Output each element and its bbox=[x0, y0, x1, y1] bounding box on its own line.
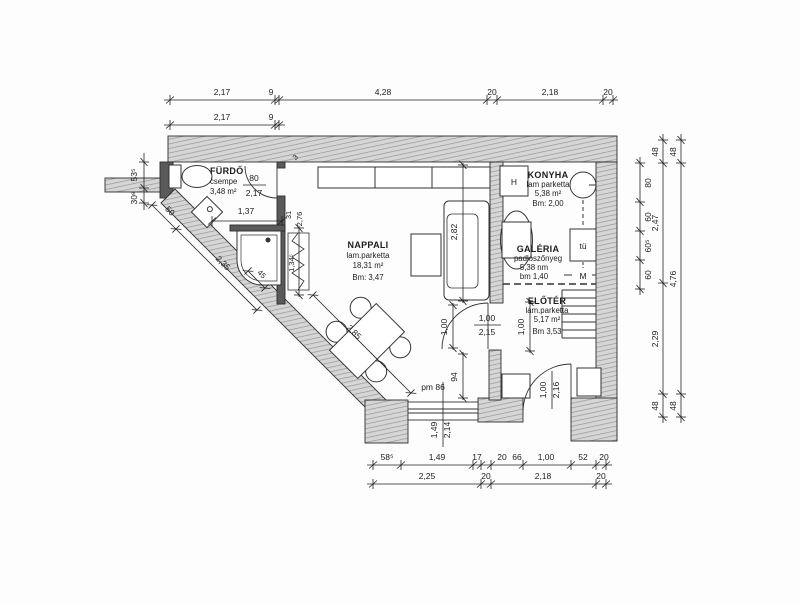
entrance-door-size: 2,16 bbox=[551, 381, 561, 398]
room-furdo: FÜRDŐ csempe 3,48 m² bbox=[210, 165, 244, 196]
dim-label: 1,00 bbox=[439, 318, 449, 335]
dim-right-mid bbox=[658, 134, 668, 423]
room-finish: csempe bbox=[210, 177, 237, 186]
room-name: NAPPALI bbox=[348, 240, 389, 250]
room-name: KONYHA bbox=[528, 170, 569, 180]
room-name: FÜRDŐ bbox=[210, 165, 244, 176]
dim-label: 80 bbox=[643, 178, 653, 188]
interior-door-size: 2,15 bbox=[479, 327, 496, 337]
wall-bottom-center bbox=[478, 398, 523, 422]
dim-label: 52 bbox=[578, 452, 588, 462]
room-finish: lam.parketta bbox=[526, 306, 570, 315]
dim-label: 53⁵ bbox=[129, 169, 139, 182]
wall-pier-below-door bbox=[489, 350, 501, 400]
dim-label: 2,82 bbox=[449, 223, 459, 240]
dim-label: 20 bbox=[599, 452, 609, 462]
dim-label: 2,18 bbox=[542, 87, 559, 97]
dim-label: 1,49 bbox=[429, 452, 446, 462]
window-size: 2,14 bbox=[442, 421, 452, 438]
dim-label: 2,25 bbox=[419, 471, 436, 481]
room-height: bm 1,40 bbox=[520, 272, 549, 281]
room-area: 5,38 m² bbox=[535, 189, 562, 198]
dim-label: 94 bbox=[449, 372, 459, 382]
dim-bath-width bbox=[208, 216, 286, 226]
coffee-table bbox=[411, 234, 441, 276]
wardrobe-row bbox=[318, 167, 490, 188]
washer-label: M bbox=[579, 271, 586, 281]
dim-label: 66 bbox=[512, 452, 522, 462]
dim-label: 31 bbox=[284, 211, 293, 219]
wall-niche-box bbox=[577, 368, 601, 396]
dim-label: 2,47 bbox=[650, 214, 660, 231]
dim-label: 9 bbox=[269, 87, 274, 97]
floor-plan-page: 2,17 9 4,28 20 2,18 20 2,17 9 58⁵ 1,49 1… bbox=[0, 0, 800, 603]
interior-door-size: 1,00 bbox=[479, 313, 496, 323]
dim-label: 4,76 bbox=[668, 270, 678, 287]
wall-bath-stub bbox=[277, 162, 285, 168]
dim-label: 58⁵ bbox=[381, 452, 394, 462]
entrance-door-size: 1,00 bbox=[538, 381, 548, 398]
dim-label: 20 bbox=[497, 452, 507, 462]
dining-set bbox=[316, 290, 417, 391]
wall-shower-top bbox=[230, 225, 285, 231]
room-name: GALÉRIA bbox=[517, 244, 560, 254]
room-konyha: KONYHA lam parketta 5,38 m² Bm: 2,00 bbox=[527, 170, 571, 208]
room-galeria: GALÉRIA padlószőnyeg 5,38 nm bm 1,40 bbox=[514, 244, 562, 281]
dim-label: 2,17 bbox=[214, 87, 231, 97]
bathroom-door-size: 80 bbox=[249, 173, 259, 183]
room-height: Bm 3,53 bbox=[532, 327, 561, 336]
wall-block-bottom-right bbox=[571, 398, 617, 441]
room-height: Bm: 3,47 bbox=[352, 273, 383, 282]
wall-top bbox=[168, 136, 617, 162]
toilet bbox=[169, 165, 212, 188]
room-area: 5,38 nm bbox=[520, 263, 548, 272]
dim-label: 48 bbox=[650, 147, 660, 157]
dim-label: 30⁸ bbox=[129, 191, 139, 204]
dim-label: 48 bbox=[650, 401, 660, 411]
dim-label: 1,37 bbox=[238, 206, 255, 216]
dim-label: 2,18 bbox=[535, 471, 552, 481]
kitchen-sink bbox=[570, 172, 596, 198]
parapet-label: pm 86 bbox=[421, 382, 445, 392]
room-finish: padlószőnyeg bbox=[514, 254, 562, 263]
room-area: 5,17 m² bbox=[534, 315, 561, 324]
dim-label: 60⁵ bbox=[643, 240, 653, 253]
dim-label: 1,00 bbox=[516, 318, 526, 335]
dim-label: 48 bbox=[668, 401, 678, 411]
dim-label: 48 bbox=[668, 147, 678, 157]
stove-label: tü bbox=[579, 241, 586, 251]
dim-label: 1,00 bbox=[538, 452, 555, 462]
room-name: ELŐTÉR bbox=[528, 295, 567, 306]
dim-label: 20 bbox=[487, 87, 497, 97]
dim-label: 9 bbox=[269, 112, 274, 122]
dim-label: 2,17 bbox=[214, 112, 231, 122]
window-size: 1,49 bbox=[429, 421, 439, 438]
bathroom-door-size: 2,17 bbox=[246, 188, 263, 198]
dim-label: 60 bbox=[643, 270, 653, 280]
dim-bottom-row1 bbox=[367, 460, 612, 470]
dim-label: 2,76 bbox=[295, 212, 304, 227]
sofa bbox=[444, 201, 489, 300]
dim-door-clear bbox=[448, 301, 458, 352]
dim-label: 17 bbox=[472, 452, 482, 462]
room-finish: lam.parketta bbox=[347, 251, 391, 260]
dim-label: 4,28 bbox=[375, 87, 392, 97]
floor-plan-drawing: 2,17 9 4,28 20 2,18 20 2,17 9 58⁵ 1,49 1… bbox=[0, 0, 800, 603]
dim-label: 1,34⁵ bbox=[287, 254, 296, 272]
fridge-label: H bbox=[511, 177, 517, 187]
room-height: Bm: 2,00 bbox=[532, 199, 564, 208]
wall-block-bottom-left bbox=[365, 400, 408, 443]
dim-label: 2,29 bbox=[650, 330, 660, 347]
room-finish: lam parketta bbox=[527, 180, 571, 189]
dim-label: 20 bbox=[481, 471, 491, 481]
room-area: 18,31 m² bbox=[353, 261, 384, 270]
room-nappali: NAPPALI lam.parketta 18,31 m² Bm: 3,47 bbox=[347, 240, 391, 282]
dim-pier-94 bbox=[458, 350, 468, 402]
dim-label: 20 bbox=[596, 471, 606, 481]
dim-label: 20 bbox=[603, 87, 613, 97]
room-area: 3,48 m² bbox=[210, 187, 237, 196]
